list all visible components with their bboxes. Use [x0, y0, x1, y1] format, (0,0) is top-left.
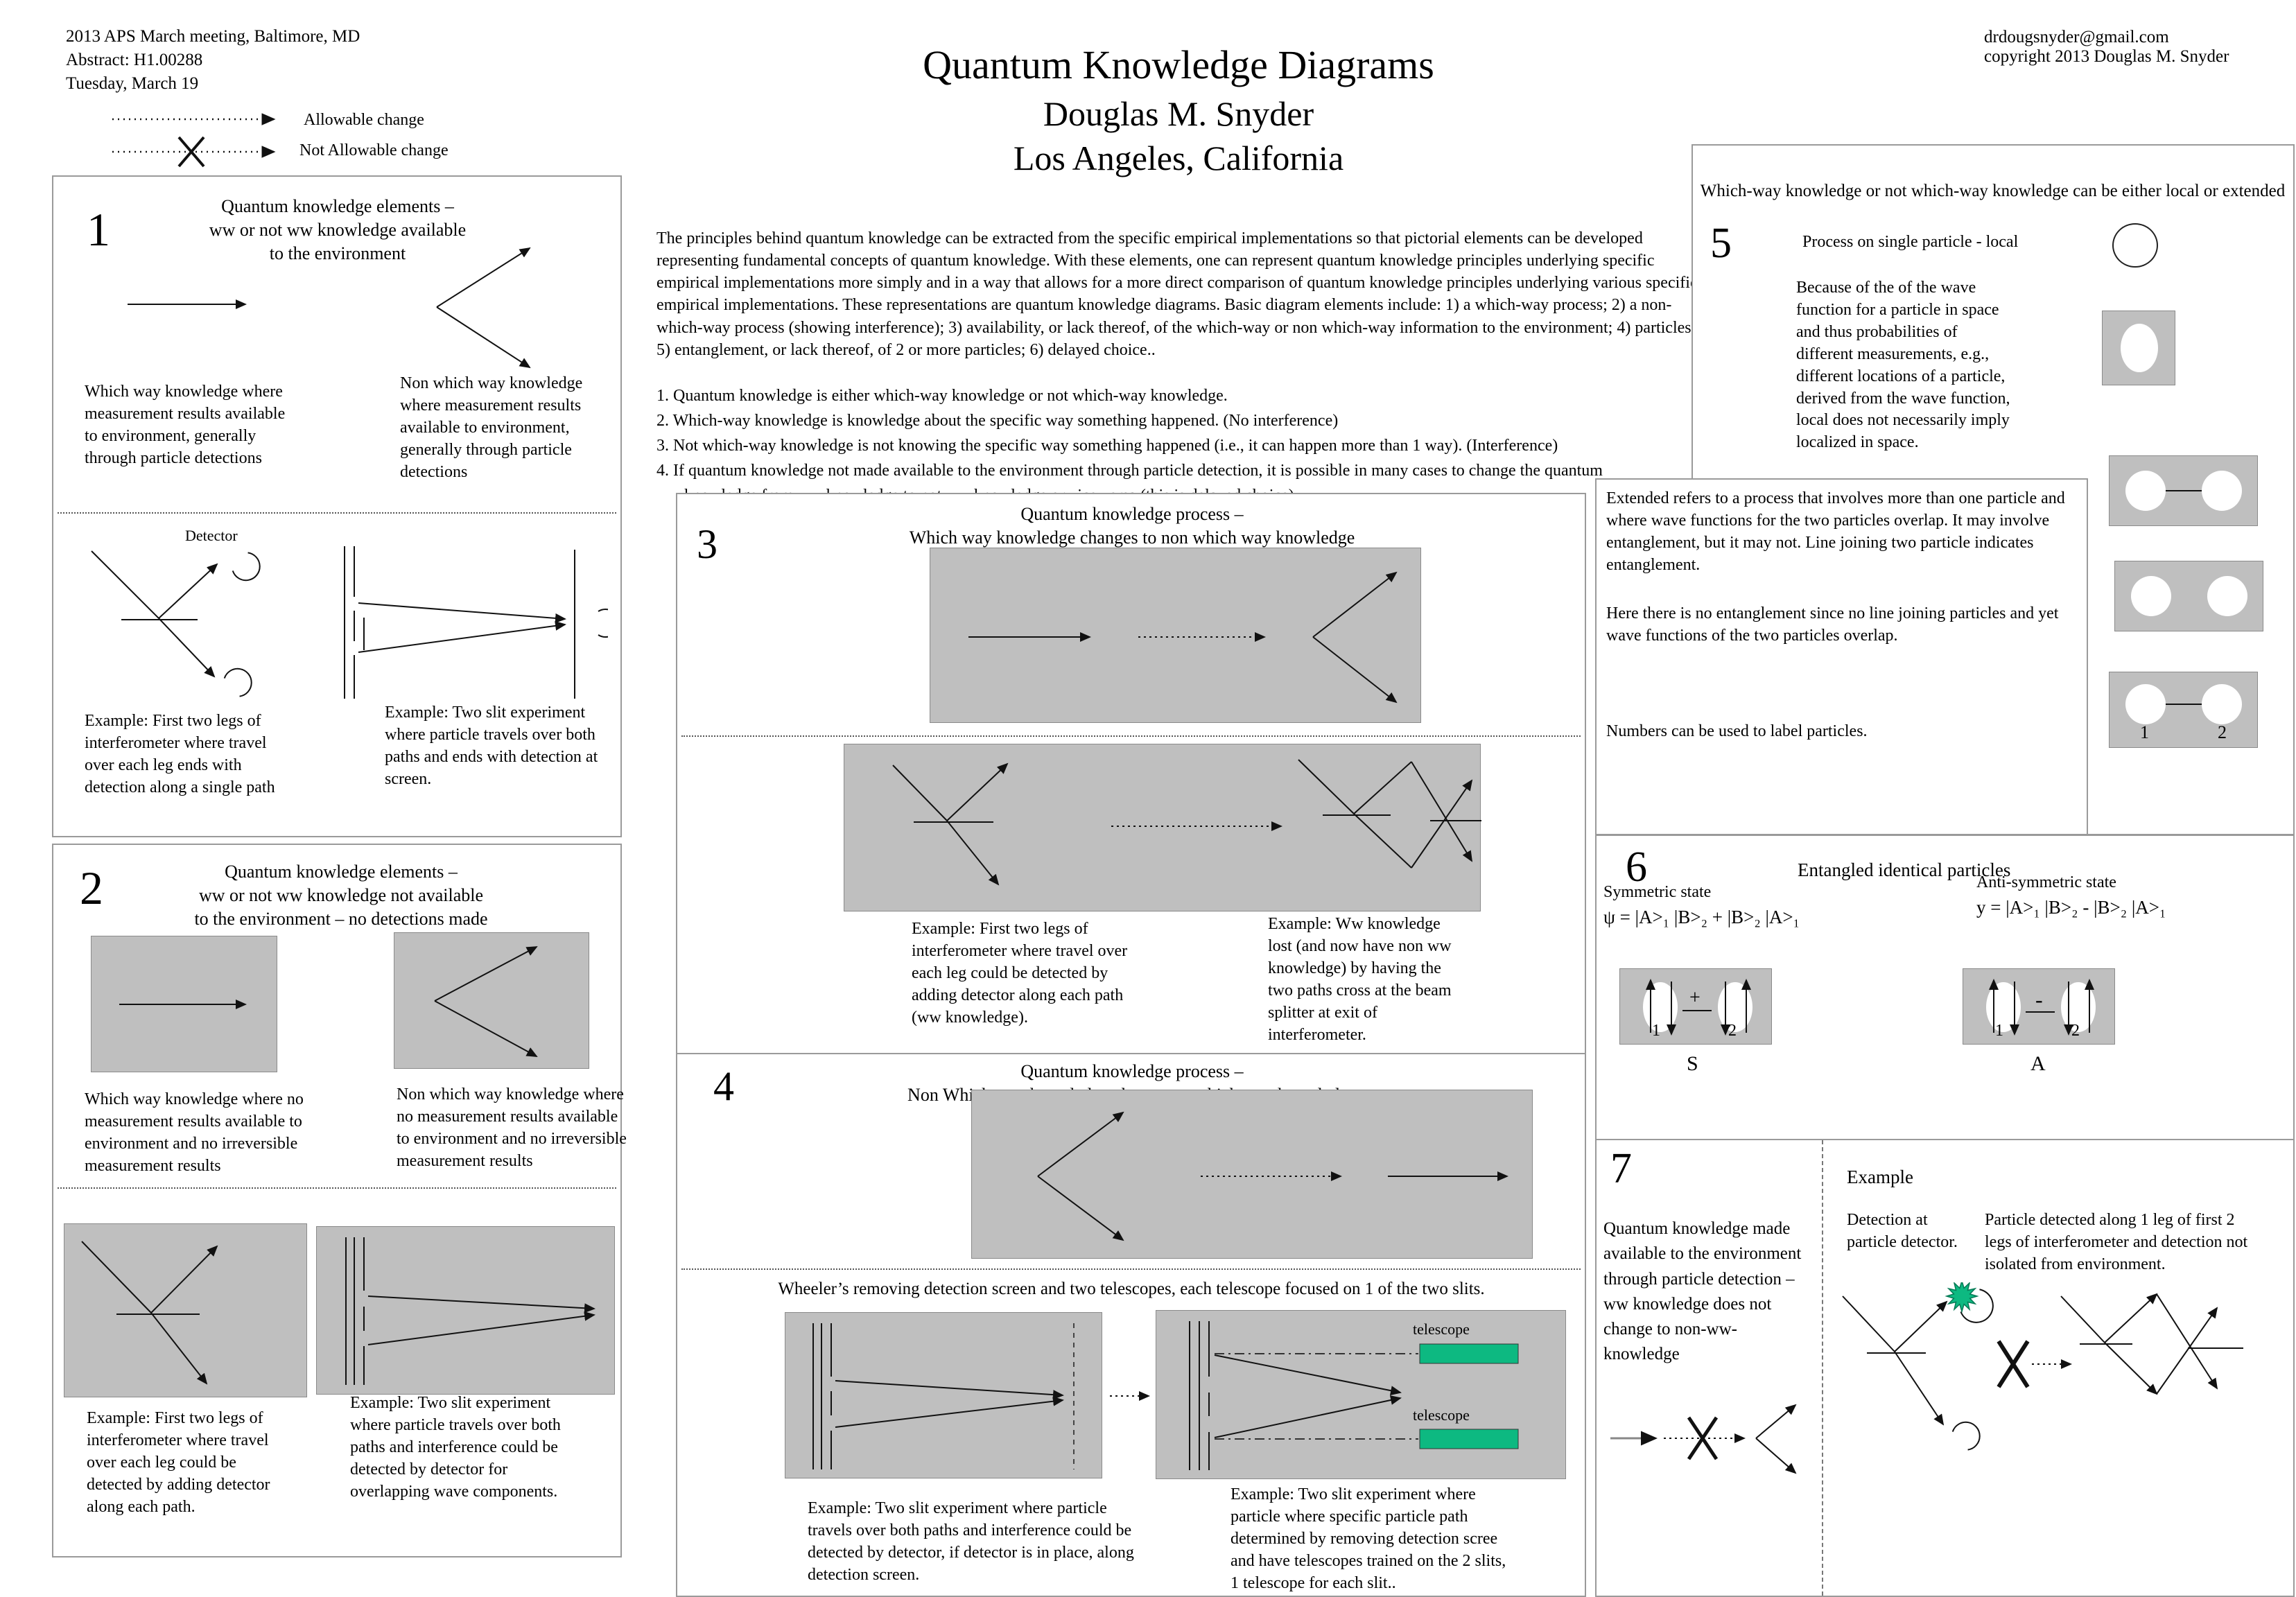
- s7-example-label: Example: [1847, 1167, 1913, 1188]
- section-7-box: 7 Quantum knowledge made available to th…: [1595, 1140, 2295, 1597]
- s5-overlap-pair-graybox: [2114, 561, 2263, 631]
- s2-two-slit-graybox: [316, 1226, 615, 1395]
- s5-entangled-pair-diagram: [2110, 456, 2259, 527]
- s1-two-slit-diagram: [331, 536, 608, 709]
- section-1-box: 1 Quantum knowledge elements – ww or not…: [52, 175, 622, 837]
- s7-divider: [1822, 1140, 1823, 1596]
- s6-anti-label: Anti-symmetric state: [1976, 872, 2116, 894]
- section-2-header: Quantum knowledge elements – ww or not w…: [133, 860, 549, 930]
- s6-plus-sign: +: [1689, 987, 1701, 1009]
- s2-ww-caption: Which way knowledge where no measurement…: [85, 1089, 320, 1178]
- s6-symmetric-eq: ψ = |A>₁ |B>₂ + |B>₂ |A>₁: [1603, 907, 1800, 928]
- s1-example-left: Example: First two legs of interferomete…: [85, 710, 293, 799]
- intro-item-1: 1. Quantum knowledge is either which-way…: [656, 383, 1717, 408]
- s2-divider: [58, 1187, 616, 1189]
- section-4-number: 4: [713, 1065, 734, 1107]
- s6-symmetric-graybox: + 1 2: [1619, 968, 1772, 1045]
- s7-interferometer-diagram: [2051, 1286, 2272, 1438]
- meeting-line-3: Tuesday, March 19: [66, 72, 360, 96]
- s4-detection-screen-diagram: [785, 1313, 1103, 1479]
- s4-example-left: Example: Two slit experiment where parti…: [808, 1498, 1140, 1587]
- s5-labeled-pair-diagram: [2110, 672, 2259, 749]
- s3-ww-to-nww-diagram: [930, 548, 1422, 724]
- s3-divider: [681, 735, 1581, 737]
- poster-location: Los Angeles, California: [832, 138, 1525, 178]
- s4-telescope-label-1: telescope: [1413, 1320, 1470, 1338]
- s2-ww-arrow-icon: [92, 936, 278, 1073]
- s5-particle-2-label: 2: [2218, 722, 2227, 743]
- section-1-number: 1: [87, 206, 110, 253]
- s4-screen-graybox: [785, 1312, 1102, 1478]
- s7-particle-caption: Particle detected along 1 leg of first 2…: [1985, 1210, 2262, 1276]
- section-4-box: 4 Quantum knowledge process – Non Which …: [676, 1054, 1586, 1597]
- s3-crossing-paths-diagram: [844, 744, 1481, 912]
- s5-particle-circle-icon: [2112, 223, 2158, 268]
- s5-because-text: Because of the of the wave function for …: [1796, 277, 2011, 454]
- s5-local-graybox: [2102, 311, 2175, 385]
- detector-arc-icon: [232, 551, 266, 586]
- s4-process-graybox: [971, 1090, 1533, 1259]
- s5-extended-text: Extended refers to a process that involv…: [1606, 488, 2079, 577]
- s3-process-graybox: [930, 548, 1421, 723]
- section-7-number: 7: [1610, 1147, 1632, 1190]
- allowable-arrow-icon: [111, 112, 288, 126]
- s1-divider: [58, 512, 616, 514]
- s5-extended-box: Extended refers to a process that involv…: [1595, 478, 2088, 835]
- s4-change-arrow-icon: [1108, 1386, 1157, 1406]
- not-allowable-arrow-icon: [111, 134, 288, 169]
- s6-anti-eq: y = |A>₁ |B>₂ - |B>₂ |A>₁: [1976, 897, 2166, 918]
- s5-labeled-pair-graybox: 1 2: [2109, 672, 2258, 748]
- s3-example-left: Example: First two legs of interferomete…: [912, 918, 1140, 1029]
- intro-item-2: 2. Which-way knowledge is knowledge abou…: [656, 408, 1717, 433]
- section-6-box: 6 Entangled identical particles Symmetri…: [1595, 835, 2295, 1140]
- section-2-box: 2 Quantum knowledge elements – ww or not…: [52, 844, 622, 1557]
- section-5-number: 5: [1710, 222, 1732, 265]
- s6-antisymmetric-graybox: - 1 2: [1963, 968, 2115, 1045]
- s1-ww-caption: Which way knowledge where measurement re…: [85, 381, 286, 470]
- s2-nww-caption: Non which way knowledge where no measure…: [397, 1084, 632, 1173]
- section-3-box: 3 Quantum knowledge process – Which way …: [676, 493, 1586, 1054]
- telescope-icon: [1420, 1429, 1518, 1449]
- s2-nww-graybox: [394, 932, 589, 1069]
- detector-arc-icon: [1951, 1417, 1985, 1451]
- intro-paragraph: The principles behind quantum knowledge …: [656, 227, 1703, 361]
- s5-here-text: Here there is no entanglement since no l…: [1606, 603, 2079, 647]
- s5-overlap-pair-diagram: [2115, 561, 2264, 632]
- s5-particle-1-label: 1: [2140, 722, 2149, 743]
- intro-list: 1. Quantum knowledge is either which-way…: [656, 383, 1717, 508]
- section-3-number: 3: [697, 523, 717, 565]
- section-2-number: 2: [80, 864, 103, 911]
- s2-two-slit-diagram: [317, 1227, 616, 1395]
- meeting-info: 2013 APS March meeting, Baltimore, MD Ab…: [66, 25, 360, 95]
- s7-no-change-diagram: [1607, 1395, 1829, 1482]
- s6-s-particle-1: 1: [1652, 1022, 1660, 1040]
- section-3-header: Quantum knowledge process – Which way kn…: [785, 503, 1479, 550]
- contact-email: drdougsnyder@gmail.com: [1984, 28, 2229, 47]
- s2-ww-graybox: [91, 936, 277, 1072]
- s6-a-particle-2: 2: [2071, 1022, 2080, 1040]
- s2-example-left: Example: First two legs of interferomete…: [87, 1408, 295, 1519]
- s4-divider: [681, 1268, 1581, 1270]
- contact-copyright: copyright 2013 Douglas M. Snyder: [1984, 47, 2229, 67]
- s1-nww-caption: Non which way knowledge where measuremen…: [400, 373, 608, 484]
- s6-a-particle-1: 1: [1995, 1022, 2003, 1040]
- s1-nww-chevron-icon: [431, 243, 542, 374]
- legend-allowable-label: Allowable change: [304, 110, 424, 132]
- s3-example-right: Example: Ww knowledge lost (and now have…: [1268, 914, 1466, 1046]
- s7-left-text: Quantum knowledge made available to the …: [1603, 1216, 1813, 1368]
- s5-entangled-pair-graybox: [2109, 455, 2258, 526]
- meeting-line-2: Abstract: H1.00288: [66, 49, 360, 72]
- s5-process-label: Process on single particle - local: [1802, 232, 2052, 254]
- legend: Allowable change Not Allowable change: [111, 110, 499, 172]
- s2-example-right: Example: Two slit experiment where parti…: [350, 1393, 579, 1503]
- s1-interferometer-diagram: [81, 541, 310, 710]
- s7-detection-diagram: [1836, 1282, 2006, 1501]
- intro-item-4: 4. If quantum knowledge not made availab…: [656, 458, 1717, 483]
- detector-arc-icon: [223, 663, 257, 698]
- s6-symmetric-label: Symmetric state: [1603, 882, 1711, 904]
- s4-telescope-label-2: telescope: [1413, 1406, 1470, 1424]
- s2-interferometer-diagram: [64, 1224, 308, 1398]
- starburst-icon: [1947, 1282, 1977, 1311]
- s6-minus-sign: -: [2035, 987, 2043, 1013]
- s3-example-graybox: [844, 744, 1481, 911]
- contact-block: drdougsnyder@gmail.com copyright 2013 Do…: [1984, 28, 2229, 67]
- title-block: Quantum Knowledge Diagrams Douglas M. Sn…: [832, 42, 1525, 178]
- telescope-icon: [1420, 1344, 1518, 1363]
- s1-ww-arrow-icon: [126, 293, 258, 315]
- s6-s-label: S: [1687, 1052, 1698, 1076]
- s2-interferometer-graybox: [64, 1223, 307, 1397]
- poster: 2013 APS March meeting, Baltimore, MD Ab…: [0, 0, 2296, 1597]
- intro-item-3: 3. Not which-way knowledge is not knowin…: [656, 433, 1717, 458]
- s4-nww-to-ww-diagram: [972, 1090, 1533, 1259]
- s1-example-right: Example: Two slit experiment where parti…: [385, 702, 600, 791]
- s4-telescopes-graybox: telescope telescope: [1156, 1310, 1566, 1479]
- s6-a-label: A: [2030, 1052, 2046, 1076]
- poster-author: Douglas M. Snyder: [832, 94, 1525, 134]
- s4-telescopes-diagram: [1156, 1311, 1567, 1480]
- section-5-header: Which-way knowledge or not which-way kno…: [1700, 182, 2286, 201]
- meeting-line-1: 2013 APS March meeting, Baltimore, MD: [66, 25, 360, 49]
- detector-arc-icon: [598, 609, 608, 637]
- s7-detection-caption: Detection at particle detector.: [1847, 1210, 1978, 1254]
- legend-not-allowable-label: Not Allowable change: [299, 140, 449, 162]
- s4-wheeler-text: Wheeler’s removing detection screen and …: [719, 1277, 1544, 1300]
- s5-wavefunction-ellipse-icon: [2121, 324, 2158, 372]
- s4-example-right: Example: Two slit experiment where parti…: [1230, 1484, 1508, 1595]
- s5-numbers-text: Numbers can be used to label particles.: [1606, 721, 2036, 743]
- s2-nww-chevron-icon: [394, 933, 590, 1070]
- s6-s-particle-2: 2: [1728, 1022, 1737, 1040]
- poster-title: Quantum Knowledge Diagrams: [832, 42, 1525, 88]
